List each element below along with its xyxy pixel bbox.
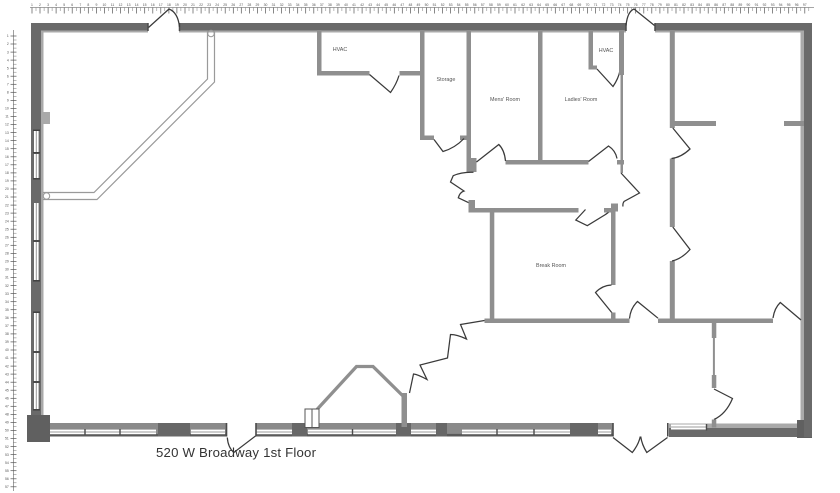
svg-text:56: 56 bbox=[473, 3, 477, 7]
svg-text:52: 52 bbox=[5, 445, 9, 449]
svg-text:28: 28 bbox=[248, 3, 252, 7]
svg-text:27: 27 bbox=[239, 3, 243, 7]
svg-text:7: 7 bbox=[79, 3, 81, 7]
svg-text:29: 29 bbox=[5, 260, 9, 264]
svg-text:1: 1 bbox=[7, 34, 9, 38]
svg-text:27: 27 bbox=[5, 244, 9, 248]
svg-text:37: 37 bbox=[5, 324, 9, 328]
svg-text:25: 25 bbox=[5, 227, 9, 231]
svg-text:18: 18 bbox=[5, 171, 9, 175]
svg-text:66: 66 bbox=[553, 3, 557, 7]
svg-text:46: 46 bbox=[392, 3, 396, 7]
svg-text:11: 11 bbox=[5, 115, 9, 119]
svg-text:85: 85 bbox=[706, 3, 710, 7]
svg-text:19: 19 bbox=[5, 179, 9, 183]
svg-text:58: 58 bbox=[489, 3, 493, 7]
svg-text:23: 23 bbox=[5, 211, 9, 215]
svg-text:3: 3 bbox=[47, 3, 49, 7]
svg-text:88: 88 bbox=[730, 3, 734, 7]
svg-text:Mens' Room: Mens' Room bbox=[490, 97, 521, 103]
svg-text:2: 2 bbox=[39, 3, 41, 7]
svg-text:9: 9 bbox=[7, 99, 9, 103]
svg-text:40: 40 bbox=[5, 348, 9, 352]
svg-text:47: 47 bbox=[400, 3, 404, 7]
svg-text:40: 40 bbox=[344, 3, 348, 7]
svg-text:39: 39 bbox=[5, 340, 9, 344]
svg-text:83: 83 bbox=[690, 3, 694, 7]
svg-text:64: 64 bbox=[537, 3, 541, 7]
svg-text:90: 90 bbox=[747, 3, 751, 7]
svg-text:55: 55 bbox=[5, 469, 9, 473]
svg-text:26: 26 bbox=[231, 3, 235, 7]
svg-text:42: 42 bbox=[5, 364, 9, 368]
svg-text:84: 84 bbox=[698, 3, 702, 7]
svg-text:23: 23 bbox=[207, 3, 211, 7]
svg-text:520 W Broadway 1st Floor: 520 W Broadway 1st Floor bbox=[156, 445, 317, 460]
svg-text:33: 33 bbox=[5, 292, 9, 296]
svg-text:51: 51 bbox=[433, 3, 437, 7]
svg-text:50: 50 bbox=[5, 429, 9, 433]
svg-text:47: 47 bbox=[5, 405, 9, 409]
svg-text:8: 8 bbox=[7, 91, 9, 95]
svg-text:32: 32 bbox=[280, 3, 284, 7]
svg-text:14: 14 bbox=[5, 139, 9, 143]
svg-text:52: 52 bbox=[441, 3, 445, 7]
svg-text:6: 6 bbox=[7, 74, 9, 78]
svg-text:12: 12 bbox=[5, 123, 9, 127]
svg-text:67: 67 bbox=[561, 3, 565, 7]
svg-text:53: 53 bbox=[449, 3, 453, 7]
svg-text:22: 22 bbox=[5, 203, 9, 207]
svg-text:34: 34 bbox=[296, 3, 300, 7]
svg-text:17: 17 bbox=[159, 3, 163, 7]
svg-text:15: 15 bbox=[5, 147, 9, 151]
svg-text:30: 30 bbox=[5, 268, 9, 272]
svg-text:97: 97 bbox=[803, 3, 807, 7]
svg-text:24: 24 bbox=[5, 219, 9, 223]
svg-text:95: 95 bbox=[787, 3, 791, 7]
svg-text:44: 44 bbox=[5, 380, 9, 384]
svg-text:18: 18 bbox=[167, 3, 171, 7]
svg-text:82: 82 bbox=[682, 3, 686, 7]
svg-text:1: 1 bbox=[31, 3, 33, 7]
svg-text:79: 79 bbox=[658, 3, 662, 7]
svg-text:32: 32 bbox=[5, 284, 9, 288]
svg-text:4: 4 bbox=[55, 3, 57, 7]
svg-text:2: 2 bbox=[7, 42, 9, 46]
svg-text:8: 8 bbox=[87, 3, 89, 7]
svg-text:62: 62 bbox=[521, 3, 525, 7]
svg-text:46: 46 bbox=[5, 397, 9, 401]
svg-text:19: 19 bbox=[175, 3, 179, 7]
svg-text:70: 70 bbox=[586, 3, 590, 7]
svg-text:9: 9 bbox=[95, 3, 97, 7]
svg-text:75: 75 bbox=[626, 3, 630, 7]
svg-text:6: 6 bbox=[71, 3, 73, 7]
svg-text:30: 30 bbox=[264, 3, 268, 7]
svg-text:54: 54 bbox=[5, 461, 9, 465]
svg-text:16: 16 bbox=[5, 155, 9, 159]
svg-text:Storage: Storage bbox=[437, 77, 456, 83]
svg-text:51: 51 bbox=[5, 437, 9, 441]
svg-text:57: 57 bbox=[5, 485, 9, 489]
svg-text:14: 14 bbox=[135, 3, 139, 7]
svg-text:HVAC: HVAC bbox=[599, 48, 614, 54]
svg-text:45: 45 bbox=[5, 388, 9, 392]
svg-text:Ladies' Room: Ladies' Room bbox=[565, 97, 598, 103]
svg-text:38: 38 bbox=[328, 3, 332, 7]
svg-text:94: 94 bbox=[779, 3, 783, 7]
svg-text:5: 5 bbox=[63, 3, 65, 7]
svg-text:55: 55 bbox=[465, 3, 469, 7]
svg-text:17: 17 bbox=[5, 163, 9, 167]
svg-text:4: 4 bbox=[7, 58, 9, 62]
svg-text:26: 26 bbox=[5, 236, 9, 240]
svg-text:43: 43 bbox=[368, 3, 372, 7]
svg-text:57: 57 bbox=[481, 3, 485, 7]
svg-text:42: 42 bbox=[360, 3, 364, 7]
svg-text:48: 48 bbox=[409, 3, 413, 7]
svg-text:3: 3 bbox=[7, 50, 9, 54]
svg-text:74: 74 bbox=[618, 3, 622, 7]
svg-text:86: 86 bbox=[714, 3, 718, 7]
svg-text:54: 54 bbox=[457, 3, 461, 7]
svg-text:25: 25 bbox=[223, 3, 227, 7]
svg-text:5: 5 bbox=[7, 66, 9, 70]
svg-text:71: 71 bbox=[594, 3, 598, 7]
svg-text:59: 59 bbox=[497, 3, 501, 7]
svg-text:80: 80 bbox=[666, 3, 670, 7]
svg-text:34: 34 bbox=[5, 300, 9, 304]
svg-text:35: 35 bbox=[5, 308, 9, 312]
svg-text:15: 15 bbox=[143, 3, 147, 7]
svg-text:20: 20 bbox=[183, 3, 187, 7]
svg-text:53: 53 bbox=[5, 453, 9, 457]
svg-text:63: 63 bbox=[529, 3, 533, 7]
svg-text:49: 49 bbox=[5, 421, 9, 425]
svg-text:45: 45 bbox=[384, 3, 388, 7]
svg-text:77: 77 bbox=[642, 3, 646, 7]
svg-text:96: 96 bbox=[795, 3, 799, 7]
svg-text:20: 20 bbox=[5, 187, 9, 191]
svg-text:73: 73 bbox=[610, 3, 614, 7]
svg-text:31: 31 bbox=[5, 276, 9, 280]
svg-text:43: 43 bbox=[5, 372, 9, 376]
svg-text:61: 61 bbox=[513, 3, 517, 7]
svg-text:16: 16 bbox=[151, 3, 155, 7]
svg-text:35: 35 bbox=[304, 3, 308, 7]
svg-text:49: 49 bbox=[417, 3, 421, 7]
svg-text:Break Room: Break Room bbox=[536, 263, 566, 269]
svg-text:36: 36 bbox=[312, 3, 316, 7]
svg-text:68: 68 bbox=[570, 3, 574, 7]
svg-text:69: 69 bbox=[578, 3, 582, 7]
svg-text:72: 72 bbox=[602, 3, 606, 7]
svg-text:92: 92 bbox=[763, 3, 767, 7]
svg-text:93: 93 bbox=[771, 3, 775, 7]
svg-text:29: 29 bbox=[256, 3, 260, 7]
svg-text:13: 13 bbox=[5, 131, 9, 135]
svg-text:41: 41 bbox=[352, 3, 356, 7]
svg-text:31: 31 bbox=[272, 3, 276, 7]
svg-text:41: 41 bbox=[5, 356, 9, 360]
svg-text:91: 91 bbox=[755, 3, 759, 7]
svg-text:89: 89 bbox=[739, 3, 743, 7]
svg-text:65: 65 bbox=[545, 3, 549, 7]
svg-text:HVAC: HVAC bbox=[333, 47, 348, 53]
svg-text:7: 7 bbox=[7, 83, 9, 87]
svg-text:28: 28 bbox=[5, 252, 9, 256]
svg-text:13: 13 bbox=[127, 3, 131, 7]
svg-text:24: 24 bbox=[215, 3, 219, 7]
svg-text:11: 11 bbox=[111, 3, 115, 7]
svg-text:12: 12 bbox=[119, 3, 123, 7]
svg-text:60: 60 bbox=[505, 3, 509, 7]
svg-text:87: 87 bbox=[722, 3, 726, 7]
svg-text:33: 33 bbox=[288, 3, 292, 7]
svg-text:48: 48 bbox=[5, 413, 9, 417]
svg-text:50: 50 bbox=[425, 3, 429, 7]
svg-text:78: 78 bbox=[650, 3, 654, 7]
svg-text:38: 38 bbox=[5, 332, 9, 336]
svg-text:76: 76 bbox=[634, 3, 638, 7]
svg-text:10: 10 bbox=[5, 107, 9, 111]
svg-text:81: 81 bbox=[674, 3, 678, 7]
svg-text:21: 21 bbox=[191, 3, 195, 7]
svg-text:44: 44 bbox=[376, 3, 380, 7]
svg-text:39: 39 bbox=[336, 3, 340, 7]
svg-text:56: 56 bbox=[5, 477, 9, 481]
svg-text:37: 37 bbox=[320, 3, 324, 7]
svg-text:21: 21 bbox=[5, 195, 9, 199]
svg-text:10: 10 bbox=[103, 3, 107, 7]
svg-text:22: 22 bbox=[199, 3, 203, 7]
svg-text:36: 36 bbox=[5, 316, 9, 320]
